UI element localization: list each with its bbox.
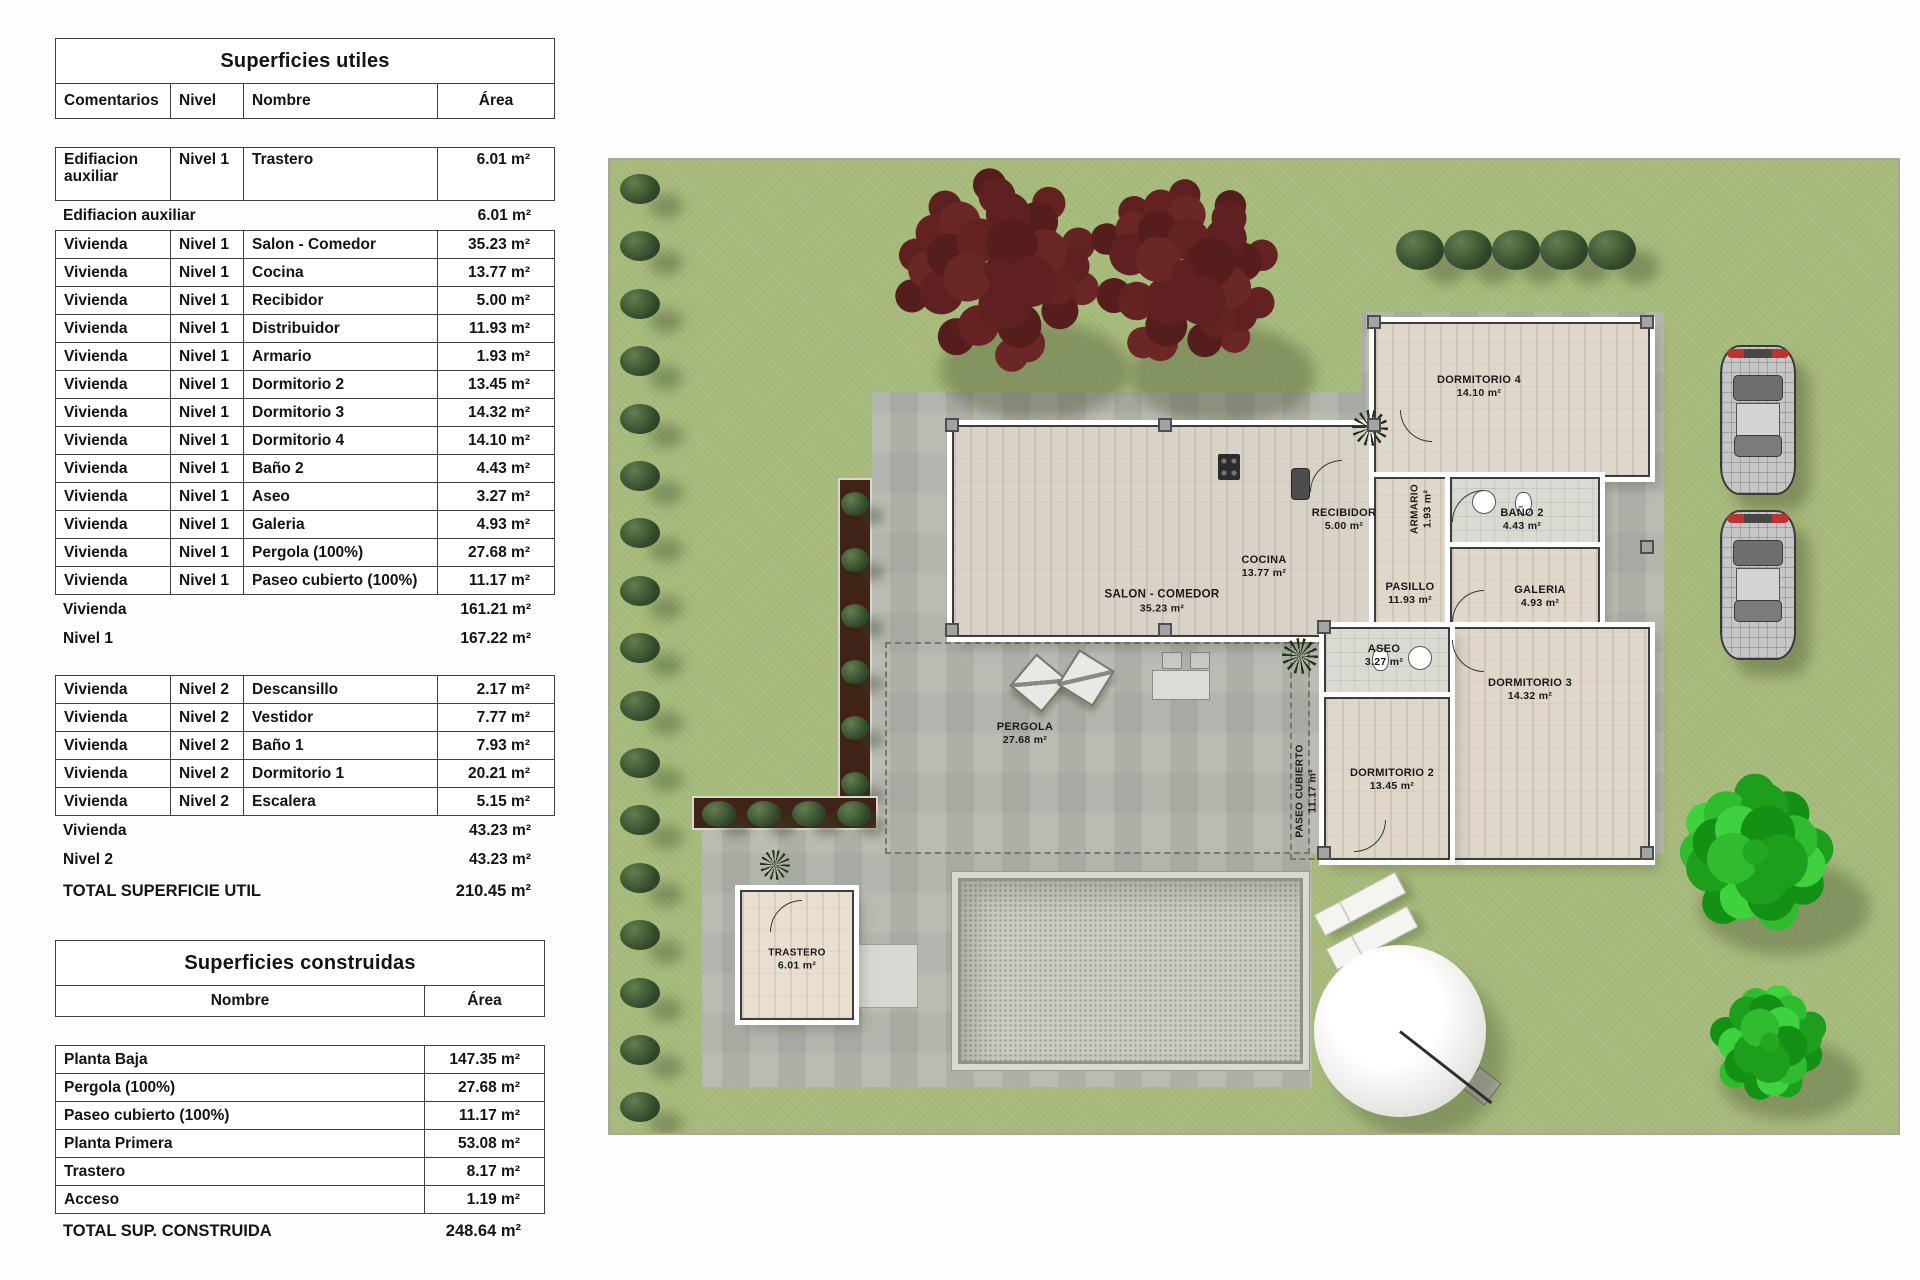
table-row: Planta Baja147.35 m²: [56, 1046, 544, 1074]
cell-area: 35.23 m²: [438, 231, 554, 258]
car: [1720, 345, 1796, 495]
red-tree: [1167, 255, 1202, 290]
cell-nombre: Distribuidor: [244, 315, 438, 342]
bush-icon: [792, 801, 826, 827]
bush-icon: [620, 805, 660, 835]
table-row: Planta Primera53.08 m²: [56, 1130, 544, 1158]
bush-icon: [620, 978, 660, 1008]
cell-nombre: Acceso: [56, 1186, 425, 1213]
plan-sheet: { "superficies_utiles": { "title": "Supe…: [0, 0, 1920, 1280]
car: [1720, 510, 1796, 660]
summary-area: 6.01 m²: [437, 201, 555, 230]
cell-nivel: Nivel 1: [171, 539, 244, 566]
cell-nivel: Nivel 1: [171, 511, 244, 538]
bush-icon: [620, 518, 660, 548]
table-row: ViviendaNivel 1Baño 24.43 m²: [56, 455, 554, 483]
bush-icon: [620, 289, 660, 319]
room-label-dormitorio3: DORMITORIO 314.32 m²: [1488, 676, 1572, 704]
pillar: [945, 623, 959, 637]
table-summary-row: Nivel 243.23 m²: [55, 845, 555, 874]
cell-nombre: Aseo: [244, 483, 438, 510]
header-comentarios: Comentarios: [56, 84, 171, 118]
cell-nivel: Nivel 2: [171, 704, 244, 731]
cell-area: 8.17 m²: [425, 1158, 544, 1185]
bush-icon: [841, 716, 869, 740]
cell-area: 13.45 m²: [438, 371, 554, 398]
cell-area: 13.77 m²: [438, 259, 554, 286]
table-header-row: Nombre Área: [55, 986, 545, 1017]
cell-nivel: Nivel 1: [171, 148, 244, 200]
bush-icon: [620, 1035, 660, 1065]
summary-label: Nivel 2: [55, 845, 437, 874]
table-header-row: Comentarios Nivel Nombre Área: [55, 84, 555, 119]
pillar: [945, 418, 959, 432]
pillar: [1640, 540, 1654, 554]
bush-icon: [841, 660, 869, 684]
table-block: Edifiacion auxiliarNivel 1Trastero6.01 m…: [55, 147, 555, 201]
room-label-trastero: TRASTERO6.01 m²: [768, 947, 825, 974]
cell-nivel: Nivel 1: [171, 455, 244, 482]
cell-comentarios: Vivienda: [56, 567, 171, 594]
pillar: [1158, 623, 1172, 637]
room-label-paseo-cubierto: PASEO CUBIERTO11.17 m²: [1294, 744, 1321, 837]
table-row: ViviendaNivel 1Dormitorio 314.32 m²: [56, 399, 554, 427]
bush-icon: [1492, 230, 1540, 270]
summary-label: Nivel 1: [55, 624, 437, 653]
cell-nivel: Nivel 1: [171, 343, 244, 370]
cell-nombre: Trastero: [244, 148, 438, 200]
table-row: Acceso1.19 m²: [56, 1186, 544, 1213]
cell-area: 3.27 m²: [438, 483, 554, 510]
cell-comentarios: Vivienda: [56, 788, 171, 815]
bush-icon: [747, 801, 781, 827]
cell-area: 6.01 m²: [438, 148, 554, 200]
bush-icon: [841, 604, 869, 628]
bathroom-sink-icon: [1408, 646, 1432, 670]
cell-nombre: Pergola (100%): [56, 1074, 425, 1101]
superficies-construidas-table: Superficies construidas Nombre Área Plan…: [55, 940, 545, 1248]
cell-nombre: Vestidor: [244, 704, 438, 731]
table-row: ViviendaNivel 1Salon - Comedor35.23 m²: [56, 231, 554, 259]
cell-area: 11.17 m²: [425, 1102, 544, 1129]
cell-nombre: Cocina: [244, 259, 438, 286]
pillar: [1640, 315, 1654, 329]
planter-horizontal: [692, 796, 878, 830]
room-label-recibidor: RECIBIDOR5.00 m²: [1312, 506, 1376, 534]
room-label-cocina: COCINA13.77 m²: [1241, 553, 1286, 581]
cell-nivel: Nivel 1: [171, 427, 244, 454]
cell-area: 27.68 m²: [425, 1074, 544, 1101]
pool: [952, 872, 1309, 1070]
cell-comentarios: Vivienda: [56, 511, 171, 538]
bush-icon: [841, 548, 869, 572]
summary-area: 161.21 m²: [437, 595, 555, 624]
cell-area: 4.43 m²: [438, 455, 554, 482]
tree-shadow: [1700, 860, 1870, 955]
room-label-galeria: GALERIA4.93 m²: [1514, 583, 1566, 611]
cell-area: 1.93 m²: [438, 343, 554, 370]
cell-area: 147.35 m²: [425, 1046, 544, 1073]
table-row: ViviendaNivel 1Armario1.93 m²: [56, 343, 554, 371]
pillar: [1317, 846, 1331, 860]
table-summary-row: Vivienda161.21 m²: [55, 595, 555, 624]
cell-area: 11.93 m²: [438, 315, 554, 342]
table-row: ViviendaNivel 1Aseo3.27 m²: [56, 483, 554, 511]
cell-nombre: Recibidor: [244, 287, 438, 314]
cell-nivel: Nivel 2: [171, 676, 244, 703]
bush-icon: [620, 633, 660, 663]
summary-area: 248.64 m²: [424, 1214, 545, 1248]
superficies-utiles-table: Superficies utiles Comentarios Nivel Nom…: [55, 38, 555, 908]
outdoor-chair: [1190, 652, 1210, 669]
cell-comentarios: Vivienda: [56, 287, 171, 314]
pillar: [1367, 418, 1381, 432]
table-block: ViviendaNivel 1Salon - Comedor35.23 m²Vi…: [55, 230, 555, 595]
room-label-dormitorio2: DORMITORIO 213.45 m²: [1350, 766, 1434, 794]
cell-nombre: Paseo cubierto (100%): [56, 1102, 425, 1129]
bush-icon: [620, 1092, 660, 1122]
table-block: ViviendaNivel 2Descansillo2.17 m²Viviend…: [55, 675, 555, 816]
car-tail-lights: [1727, 514, 1789, 523]
cell-nombre: Baño 1: [244, 732, 438, 759]
cell-area: 2.17 m²: [438, 676, 554, 703]
header-nombre: Nombre: [244, 84, 438, 118]
cell-area: 5.00 m²: [438, 287, 554, 314]
cell-nombre: Dormitorio 1: [244, 760, 438, 787]
cell-nombre: Escalera: [244, 788, 438, 815]
cell-area: 53.08 m²: [425, 1130, 544, 1157]
room-label-pergola: PERGOLA27.68 m²: [997, 720, 1054, 748]
table-total-row: TOTAL SUP. CONSTRUIDA248.64 m²: [55, 1214, 545, 1248]
tree-shadow: [1130, 325, 1315, 425]
tree-shadow: [940, 320, 1130, 420]
cell-nombre: Dormitorio 4: [244, 427, 438, 454]
palm-plant-icon: [760, 850, 790, 880]
room-label-aseo: ASEO3.27 m²: [1365, 642, 1403, 670]
cell-nombre: Dormitorio 2: [244, 371, 438, 398]
cell-comentarios: Vivienda: [56, 760, 171, 787]
cell-nombre: Trastero: [56, 1158, 425, 1185]
table-total-row: TOTAL SUPERFICIE UTIL210.45 m²: [55, 874, 555, 908]
stove-icon: [1218, 454, 1240, 480]
cell-nombre: Dormitorio 3: [244, 399, 438, 426]
cell-comentarios: Edifiacion auxiliar: [56, 148, 171, 200]
cell-comentarios: Vivienda: [56, 259, 171, 286]
cell-comentarios: Vivienda: [56, 732, 171, 759]
room-label-salon: SALON - COMEDOR35.23 m²: [1104, 588, 1219, 617]
palm-plant-icon: [1282, 638, 1318, 674]
table-row: ViviendaNivel 1Dormitorio 213.45 m²: [56, 371, 554, 399]
bush-icon: [1588, 230, 1636, 270]
bush-icon: [841, 492, 869, 516]
bush-icon: [1396, 230, 1444, 270]
table-row: Paseo cubierto (100%)11.17 m²: [56, 1102, 544, 1130]
bush-icon: [620, 920, 660, 950]
bush-icon: [620, 576, 660, 606]
cell-nombre: Planta Baja: [56, 1046, 425, 1073]
bush-icon: [620, 174, 660, 204]
room-label-armario: ARMARIO1.93 m²: [1409, 484, 1436, 534]
bush-icon: [620, 748, 660, 778]
car-windshield: [1733, 375, 1783, 401]
cell-nombre: Paseo cubierto (100%): [244, 567, 438, 594]
table-row: ViviendaNivel 2Dormitorio 120.21 m²: [56, 760, 554, 788]
summary-label: TOTAL SUPERFICIE UTIL: [55, 874, 437, 908]
cell-comentarios: Vivienda: [56, 539, 171, 566]
planter-vertical: [838, 478, 872, 822]
cell-nombre: Pergola (100%): [244, 539, 438, 566]
summary-area: 43.23 m²: [437, 816, 555, 845]
cell-comentarios: Vivienda: [56, 399, 171, 426]
room-label-dormitorio4: DORMITORIO 414.10 m²: [1437, 373, 1521, 401]
kitchen-sink-icon: [1291, 468, 1310, 500]
bush-icon: [1540, 230, 1588, 270]
bush-icon: [1444, 230, 1492, 270]
summary-label: Vivienda: [55, 595, 437, 624]
cell-area: 7.77 m²: [438, 704, 554, 731]
pillar: [1640, 846, 1654, 860]
cell-area: 27.68 m²: [438, 539, 554, 566]
table-row: ViviendaNivel 1Dormitorio 414.10 m²: [56, 427, 554, 455]
cell-nombre: Salon - Comedor: [244, 231, 438, 258]
table-row: ViviendaNivel 1Distribuidor11.93 m²: [56, 315, 554, 343]
table-row: ViviendaNivel 1Recibidor5.00 m²: [56, 287, 554, 315]
cell-nivel: Nivel 1: [171, 231, 244, 258]
outdoor-chair: [1162, 652, 1182, 669]
summary-label: Vivienda: [55, 816, 437, 845]
cell-nivel: Nivel 1: [171, 287, 244, 314]
cell-nombre: Galeria: [244, 511, 438, 538]
car-rear-window: [1734, 435, 1782, 457]
bush-icon: [837, 801, 871, 827]
header-area: Área: [438, 84, 554, 118]
cell-nivel: Nivel 2: [171, 788, 244, 815]
cell-nombre: Planta Primera: [56, 1130, 425, 1157]
table-summary-row: Nivel 1167.22 m²: [55, 624, 555, 653]
room-label-bano2: BAÑO 24.43 m²: [1500, 506, 1543, 534]
cell-comentarios: Vivienda: [56, 315, 171, 342]
tree-shadow: [1720, 1040, 1860, 1120]
summary-area: 210.45 m²: [437, 874, 555, 908]
pillar: [1317, 620, 1331, 634]
summary-label: Edifiacion auxiliar: [55, 201, 437, 230]
table-row: ViviendaNivel 1Pergola (100%)27.68 m²: [56, 539, 554, 567]
table-row: Trastero8.17 m²: [56, 1158, 544, 1186]
car-tail-lights: [1727, 349, 1789, 358]
cell-comentarios: Vivienda: [56, 676, 171, 703]
bush-icon: [841, 772, 869, 796]
cell-area: 11.17 m²: [438, 567, 554, 594]
summary-area: 167.22 m²: [437, 624, 555, 653]
red-tree: [984, 257, 1010, 283]
summary-label: TOTAL SUP. CONSTRUIDA: [55, 1214, 424, 1248]
cell-area: 7.93 m²: [438, 732, 554, 759]
cell-area: 5.15 m²: [438, 788, 554, 815]
bush-icon: [620, 863, 660, 893]
bush-icon: [620, 461, 660, 491]
table-title: Superficies utiles: [55, 38, 555, 84]
car-windshield: [1733, 540, 1783, 566]
bush-icon: [620, 404, 660, 434]
header-nivel: Nivel: [171, 84, 244, 118]
cell-comentarios: Vivienda: [56, 231, 171, 258]
cell-area: 14.10 m²: [438, 427, 554, 454]
pillar: [1367, 315, 1381, 329]
car-rear-window: [1734, 600, 1782, 622]
table-summary-row: Vivienda43.23 m²: [55, 816, 555, 845]
cell-nombre: Armario: [244, 343, 438, 370]
cell-nivel: Nivel 1: [171, 483, 244, 510]
cell-nombre: Descansillo: [244, 676, 438, 703]
cell-area: 4.93 m²: [438, 511, 554, 538]
header-area: Área: [425, 986, 544, 1016]
cell-area: 1.19 m²: [425, 1186, 544, 1213]
table-summary-row: Edifiacion auxiliar6.01 m²: [55, 201, 555, 230]
table-row: ViviendaNivel 2Escalera5.15 m²: [56, 788, 554, 815]
cell-comentarios: Vivienda: [56, 455, 171, 482]
table-block: Planta Baja147.35 m²Pergola (100%)27.68 …: [55, 1045, 545, 1214]
site-plan: SALON - COMEDOR35.23 m² COCINA13.77 m² R…: [608, 158, 1900, 1135]
table-row: ViviendaNivel 2Vestidor7.77 m²: [56, 704, 554, 732]
table-row: ViviendaNivel 2Baño 17.93 m²: [56, 732, 554, 760]
cell-nivel: Nivel 1: [171, 399, 244, 426]
header-nombre: Nombre: [56, 986, 425, 1016]
cell-comentarios: Vivienda: [56, 427, 171, 454]
cell-nivel: Nivel 1: [171, 259, 244, 286]
summary-area: 43.23 m²: [437, 845, 555, 874]
cell-nivel: Nivel 2: [171, 732, 244, 759]
bush-icon: [620, 231, 660, 261]
cell-nivel: Nivel 1: [171, 315, 244, 342]
cell-comentarios: Vivienda: [56, 343, 171, 370]
pillar: [1158, 418, 1172, 432]
bush-icon: [702, 801, 736, 827]
bush-icon: [620, 691, 660, 721]
cell-area: 14.32 m²: [438, 399, 554, 426]
table-row: ViviendaNivel 2Descansillo2.17 m²: [56, 676, 554, 704]
access-pad: [854, 944, 918, 1008]
table-row: ViviendaNivel 1Cocina13.77 m²: [56, 259, 554, 287]
table-row: ViviendaNivel 1Galeria4.93 m²: [56, 511, 554, 539]
table-row: Edifiacion auxiliarNivel 1Trastero6.01 m…: [56, 148, 554, 200]
cell-nivel: Nivel 1: [171, 371, 244, 398]
cell-nivel: Nivel 1: [171, 567, 244, 594]
cell-nombre: Baño 2: [244, 455, 438, 482]
cell-nivel: Nivel 2: [171, 760, 244, 787]
bush-icon: [620, 346, 660, 376]
table-row: Pergola (100%)27.68 m²: [56, 1074, 544, 1102]
cell-comentarios: Vivienda: [56, 704, 171, 731]
room-label-pasillo: PASILLO11.93 m²: [1386, 580, 1435, 608]
cell-comentarios: Vivienda: [56, 483, 171, 510]
green-tree: [1742, 839, 1768, 865]
cell-comentarios: Vivienda: [56, 371, 171, 398]
cell-area: 20.21 m²: [438, 760, 554, 787]
table-row: ViviendaNivel 1Paseo cubierto (100%)11.1…: [56, 567, 554, 594]
outdoor-table: [1152, 670, 1210, 700]
table-title: Superficies construidas: [55, 940, 545, 986]
